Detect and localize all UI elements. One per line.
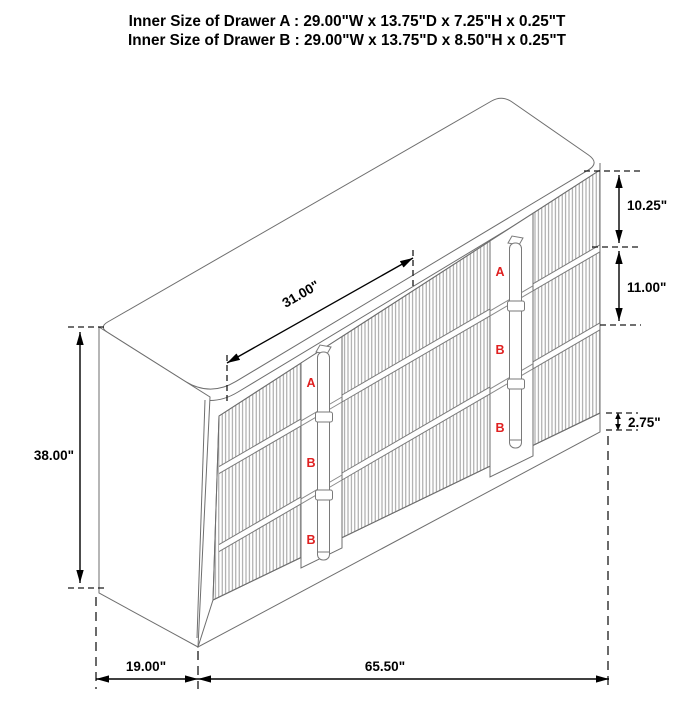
handle-bar-right-joint-1	[508, 301, 525, 311]
handle-bar-right-joint-2	[508, 379, 525, 389]
marker-right-b2: B	[495, 421, 504, 435]
title-block: Inner Size of Drawer A : 29.00"W x 13.75…	[128, 13, 567, 49]
handle-bar-right	[510, 243, 522, 448]
drawer-bank-right	[533, 170, 600, 445]
handle-bar-left-joint-2	[316, 490, 333, 500]
handle-bar-left	[318, 352, 330, 560]
title-line-2: Inner Size of Drawer B : 29.00"W x 13.75…	[128, 32, 567, 49]
sideboard-isometric-drawing: A B B A B B	[0, 0, 700, 700]
dim-width-label: 65.50"	[365, 659, 405, 674]
cabinet-body	[99, 98, 600, 647]
handle-bar-left-joint-1	[316, 412, 333, 422]
dim-base-height-arrow	[615, 413, 621, 431]
dim-drawer-a-label: 10.25"	[627, 198, 667, 213]
dim-depth-label: 19.00"	[126, 659, 166, 674]
furniture-dimension-diagram: A B B A B B	[0, 0, 700, 700]
marker-left-a: A	[306, 376, 315, 390]
marker-left-b2: B	[306, 533, 315, 547]
marker-right-b1: B	[495, 343, 504, 357]
marker-right-a: A	[495, 265, 504, 279]
dim-height-label: 38.00"	[34, 448, 74, 463]
marker-left-b1: B	[306, 456, 315, 470]
dim-base-height-label: 2.75"	[628, 415, 661, 430]
title-line-1: Inner Size of Drawer A : 29.00"W x 13.75…	[129, 13, 566, 30]
dim-drawer-b-label: 11.00"	[627, 280, 666, 295]
